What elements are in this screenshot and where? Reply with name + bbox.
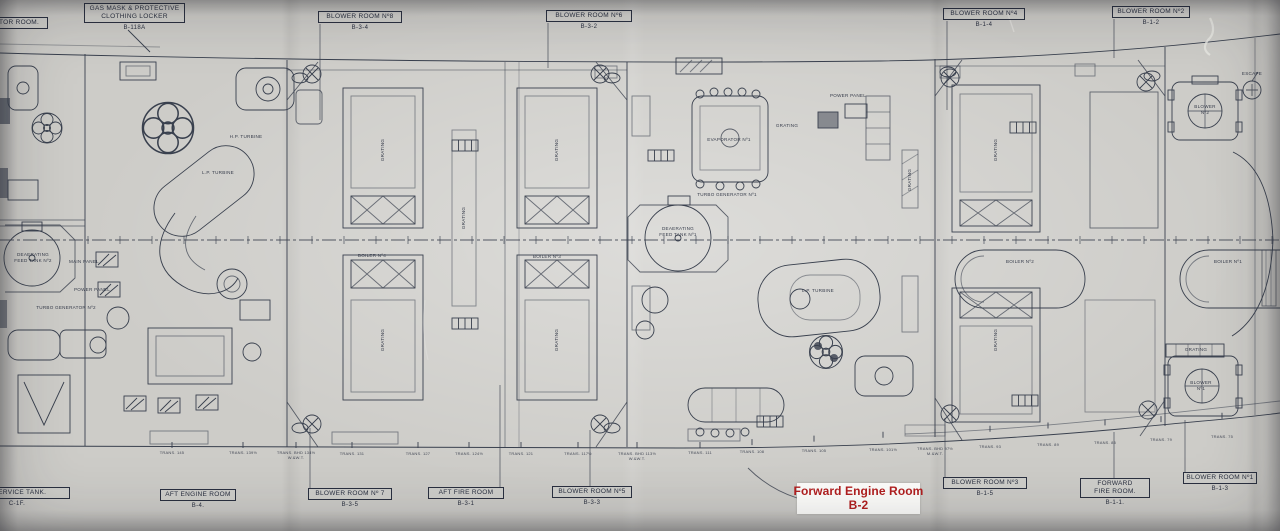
- annotation-room-name: Forward Engine Room: [794, 485, 924, 499]
- bow-section: [1164, 72, 1276, 416]
- forward-fire-room-boilers: [940, 64, 1280, 423]
- forward-engine-room-annotation: Forward Engine Room B-2: [797, 483, 920, 514]
- hull-and-bulkheads: [0, 19, 1280, 498]
- forward-engine-room-machinery: [628, 58, 918, 437]
- blueprint-linework: [0, 0, 1280, 531]
- aft-fire-room-boilers: [292, 65, 620, 433]
- blueprint-photo: ATOR ROOM.GAS MASK & PROTECTIVE CLOTHING…: [0, 0, 1280, 531]
- aft-engine-room-machinery: [60, 62, 322, 413]
- annotation-room-code: B-2: [849, 499, 869, 513]
- aft-auxiliary-space: [0, 66, 120, 433]
